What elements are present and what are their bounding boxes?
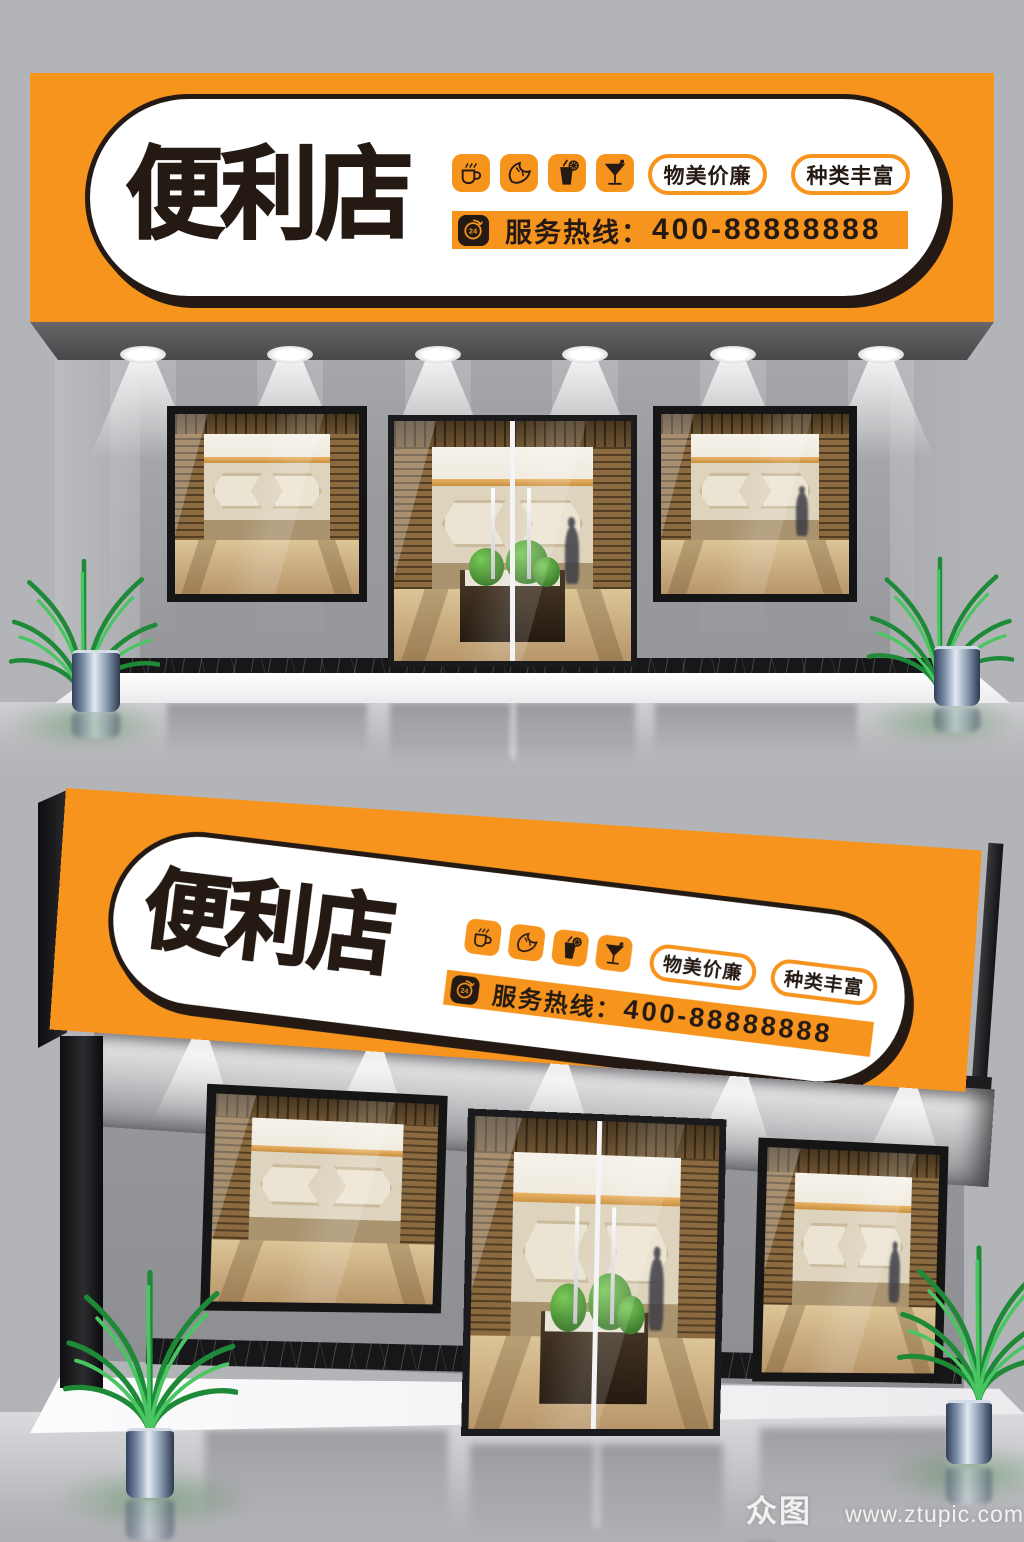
door-reflection <box>390 703 635 769</box>
downlight-icon <box>415 346 461 363</box>
hotline-label: 服务热线： <box>491 976 624 1027</box>
croissant-icon <box>507 923 546 962</box>
window-reflection <box>655 703 857 759</box>
interior-left-wood-wall <box>394 447 432 596</box>
product-icon-row <box>463 918 633 973</box>
interior-right-wood-wall <box>677 1158 719 1347</box>
site-watermark: 众图网 www.ztupic.com <box>746 1486 1024 1542</box>
right-plant-pot <box>946 1400 992 1464</box>
planter-moss <box>469 548 504 585</box>
store-title: 便利店 <box>126 145 411 245</box>
soda-glass-icon <box>551 929 590 968</box>
interior-right-wood-wall <box>593 447 631 596</box>
24h-clock-icon: 24 <box>458 215 489 246</box>
pot-reflection <box>934 708 980 732</box>
downlight-icon <box>562 346 608 363</box>
window-reflection <box>205 1430 448 1534</box>
door-divider <box>510 421 515 661</box>
interior-left-wood-wall <box>211 1116 252 1246</box>
store-title: 便利店 <box>139 865 398 983</box>
pot-reflection <box>72 712 120 738</box>
storefront-signage-mockup: 便利店 <box>0 0 1024 1542</box>
interior-person <box>565 527 579 585</box>
interior-back-wall <box>249 1151 403 1221</box>
interior-hex-panel <box>272 473 322 509</box>
pot-reflection <box>126 1500 174 1540</box>
24h-clock-icon: 24 <box>449 974 480 1005</box>
downlight-icon <box>267 346 313 363</box>
left-plant-pot <box>126 1428 174 1498</box>
planter-moss <box>533 557 560 587</box>
cocktail-icon <box>596 154 634 192</box>
storefront-interior-view <box>210 1093 439 1304</box>
interior-hex-panel <box>332 1166 393 1208</box>
hotline-bar: 24 服务热线： 400-88888888 <box>452 211 908 249</box>
window-reflection <box>167 703 367 759</box>
interior-left-wood-wall <box>763 1172 795 1312</box>
soda-glass-icon <box>548 154 586 192</box>
interior-floor <box>661 540 849 594</box>
right-plant <box>896 1238 1024 1404</box>
interior-hex-panel <box>259 1163 322 1206</box>
badge-quality: 物美价廉 <box>648 943 759 993</box>
cocktail-icon <box>594 934 633 973</box>
door-reflection <box>470 1444 723 1542</box>
left-plant <box>62 1262 238 1438</box>
coffee-icon <box>463 918 502 957</box>
planter-moss <box>616 1296 645 1335</box>
canopy <box>30 322 994 360</box>
right-plant-pot <box>934 646 980 706</box>
interior-hex-panel <box>800 1222 848 1268</box>
interior-hex-panel <box>442 500 506 548</box>
interior-ceiling-slats <box>661 414 849 434</box>
interior-left-wood-wall <box>175 434 204 546</box>
interior-left-wood-wall <box>470 1150 514 1344</box>
hotline-label: 服务热线： <box>505 211 650 250</box>
sign-panel: 便利店 <box>85 94 947 301</box>
interior-ceiling-slats <box>175 414 359 434</box>
interior-hex-panel <box>522 1220 591 1283</box>
badge-variety: 种类丰富 <box>791 154 910 195</box>
svg-text:24: 24 <box>460 987 469 995</box>
interior-hex-panel <box>212 473 262 509</box>
badge-quality: 物美价廉 <box>648 154 767 195</box>
interior-left-wood-wall <box>661 434 691 546</box>
potted-palm-plant <box>62 1262 238 1438</box>
coffee-icon <box>452 154 490 192</box>
display-window-right <box>653 406 857 602</box>
signboard-front: 便利店 <box>30 73 994 322</box>
hotline-number: 400-88888888 <box>652 213 882 247</box>
interior-person <box>796 493 807 536</box>
watermark-url: www.ztupic.com <box>845 1501 1024 1528</box>
door-handle <box>491 488 495 579</box>
entrance-glass-door <box>388 415 637 667</box>
interior-right-wood-wall <box>400 1125 438 1251</box>
storefront-interior-view <box>661 414 849 594</box>
hotline-number: 400-88888888 <box>622 994 834 1050</box>
interior-lower-wall <box>204 520 329 540</box>
display-window-left <box>167 406 367 602</box>
badge-variety: 种类丰富 <box>769 957 880 1007</box>
downlight-icon <box>120 346 166 363</box>
interior-person <box>648 1258 664 1332</box>
interior-floor <box>210 1239 435 1304</box>
interior-right-wood-wall <box>819 434 849 546</box>
entrance-glass-door <box>461 1108 726 1435</box>
product-icon-row <box>452 154 634 192</box>
potted-palm-plant <box>896 1238 1024 1404</box>
storefront-interior-view <box>175 414 359 594</box>
svg-text:24: 24 <box>469 227 478 236</box>
watermark-logo: 众图网 <box>746 1486 833 1542</box>
door-handle <box>527 488 531 579</box>
downlight-icon <box>710 346 756 363</box>
left-plant-pot <box>72 650 120 712</box>
interior-floor <box>175 540 359 594</box>
downlight-icon <box>858 346 904 363</box>
interior-right-wood-wall <box>330 434 359 546</box>
interior-back-wall <box>204 463 329 521</box>
croissant-icon <box>500 154 538 192</box>
planter-moss <box>549 1283 587 1332</box>
interior-hex-panel <box>699 473 750 509</box>
